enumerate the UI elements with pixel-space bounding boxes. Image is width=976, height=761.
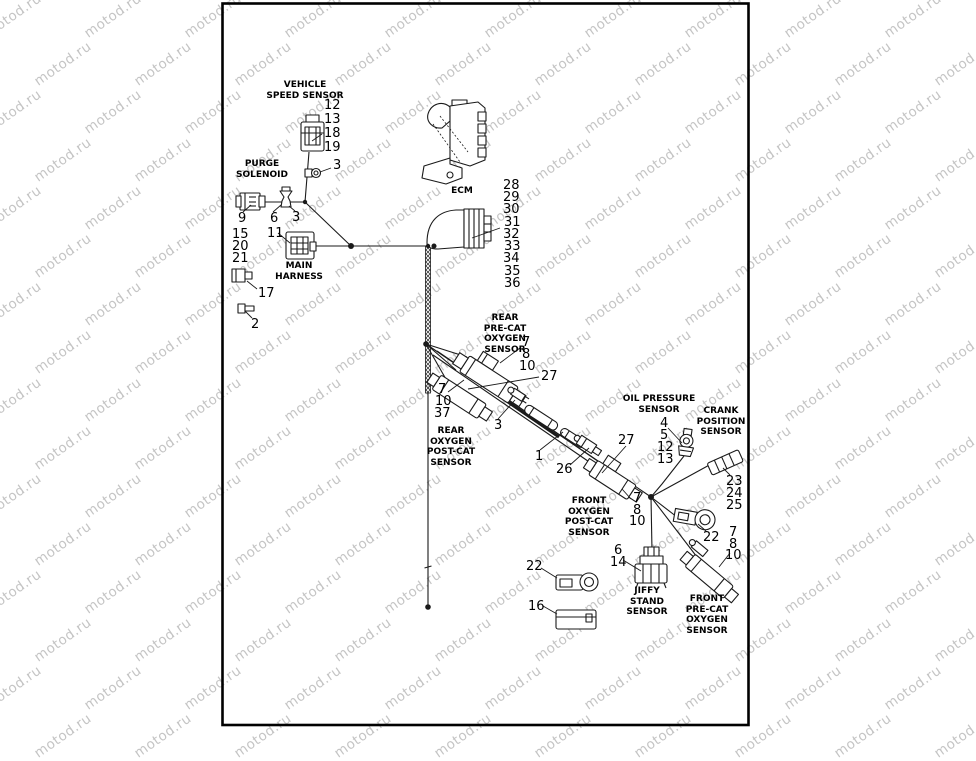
callout-2: 2 [251,318,259,331]
rear-pre-cat-oxygen-sensor-label: REARPRE-CATOXYGENSENSOR [484,313,526,355]
callout-19-vss: 19 [324,141,341,154]
label-layer: VEHICLESPEED SENSORPURGESOLENOIDMAINHARN… [0,0,976,732]
crank-position-sensor-label: CRANKPOSITIONSENSOR [697,406,746,438]
callout-12-vss: 12 [324,99,341,112]
callout-10-front-precat: 10 [725,549,742,562]
callout-17: 17 [258,287,275,300]
callout-16: 16 [528,600,545,613]
jiffy-stand-sensor-label: JIFFYSTANDSENSOR [626,586,667,618]
callout-3-mid: 3 [494,419,502,432]
callout-27-front: 27 [618,434,635,447]
callout-37: 37 [434,407,451,420]
callout-11: 11 [267,227,284,240]
callout-9-purge: 9 [238,212,246,225]
callout-36-ecm: 36 [504,277,521,290]
callout-10-front-postcat: 10 [629,515,646,528]
callout-10-rear-precat: 10 [519,360,536,373]
rear-oxygen-post-cat-sensor-label: REAROXYGENPOST-CATSENSOR [427,426,475,468]
callout-3-vss: 3 [333,159,341,172]
callout-22-eyelet: 22 [526,560,543,573]
oil-pressure-sensor-label: OIL PRESSURESENSOR [623,394,696,415]
callout-22-neutral: 22 [703,531,720,544]
callout-3-purge: 3 [292,211,300,224]
callout-25-crank: 25 [726,499,743,512]
callout-13-vss: 13 [324,113,341,126]
callout-26: 26 [556,463,573,476]
callout-14-jiffy: 14 [610,556,627,569]
front-oxygen-post-cat-sensor-label: FRONTOXYGENPOST-CATSENSOR [565,496,613,538]
callout-27-rear: 27 [541,370,558,383]
purge-solenoid-label: PURGESOLENOID [236,159,288,180]
main-harness-label: MAINHARNESS [275,261,323,282]
callout-21: 21 [232,252,249,265]
front-pre-cat-oxygen-sensor-label: FRONTPRE-CATOXYGENSENSOR [686,594,728,636]
callout-1: 1 [535,450,543,463]
ecm-label: ECM [451,186,473,197]
callout-6-purge: 6 [270,212,278,225]
callout-13-oil: 13 [657,453,674,466]
callout-18-vss: 18 [324,127,341,140]
